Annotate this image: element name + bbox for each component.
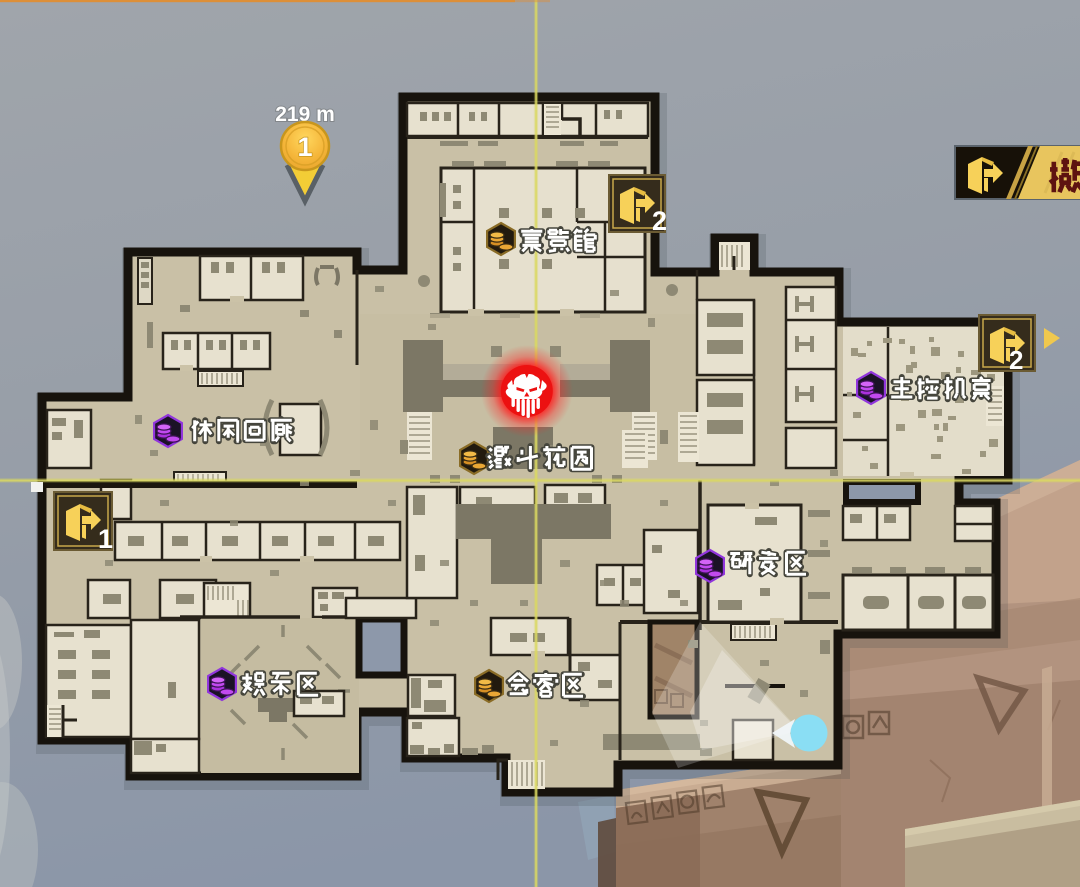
svg-text:2: 2 (652, 206, 667, 236)
svg-text:1: 1 (297, 132, 312, 162)
svg-text:2: 2 (1009, 345, 1023, 375)
svg-text:1: 1 (98, 524, 113, 554)
